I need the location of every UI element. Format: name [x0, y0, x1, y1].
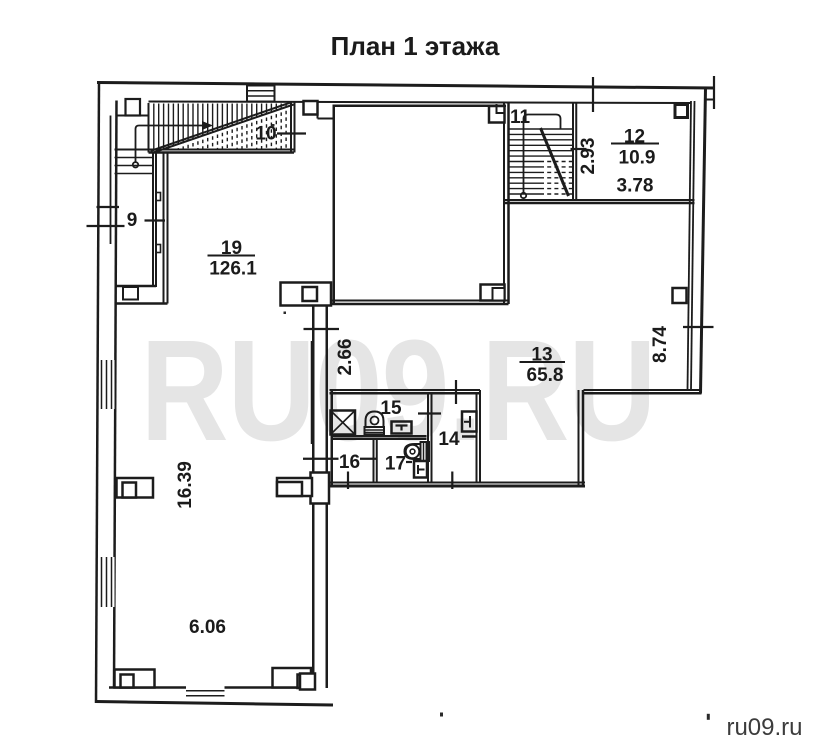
svg-text:9: 9	[127, 210, 138, 231]
svg-text:17: 17	[385, 454, 406, 475]
svg-text:2.66: 2.66	[335, 339, 356, 376]
svg-text:2.93: 2.93	[578, 138, 599, 175]
svg-text:8.74: 8.74	[650, 326, 671, 363]
svg-text:3.78: 3.78	[617, 176, 654, 197]
svg-text:ru09.ru: ru09.ru	[726, 714, 802, 741]
svg-text:15: 15	[380, 398, 402, 419]
svg-text:6.06: 6.06	[189, 617, 226, 638]
svg-text:16.39: 16.39	[175, 461, 196, 509]
svg-text:126.1: 126.1	[209, 259, 257, 280]
svg-text:10.9: 10.9	[619, 148, 656, 169]
svg-text:План 1 этажа: План 1 этажа	[331, 31, 500, 61]
svg-text:10: 10	[255, 124, 276, 145]
svg-text:14: 14	[438, 429, 460, 450]
svg-text:11: 11	[510, 107, 531, 128]
svg-text:16: 16	[339, 452, 360, 473]
svg-text:65.8: 65.8	[527, 365, 564, 386]
